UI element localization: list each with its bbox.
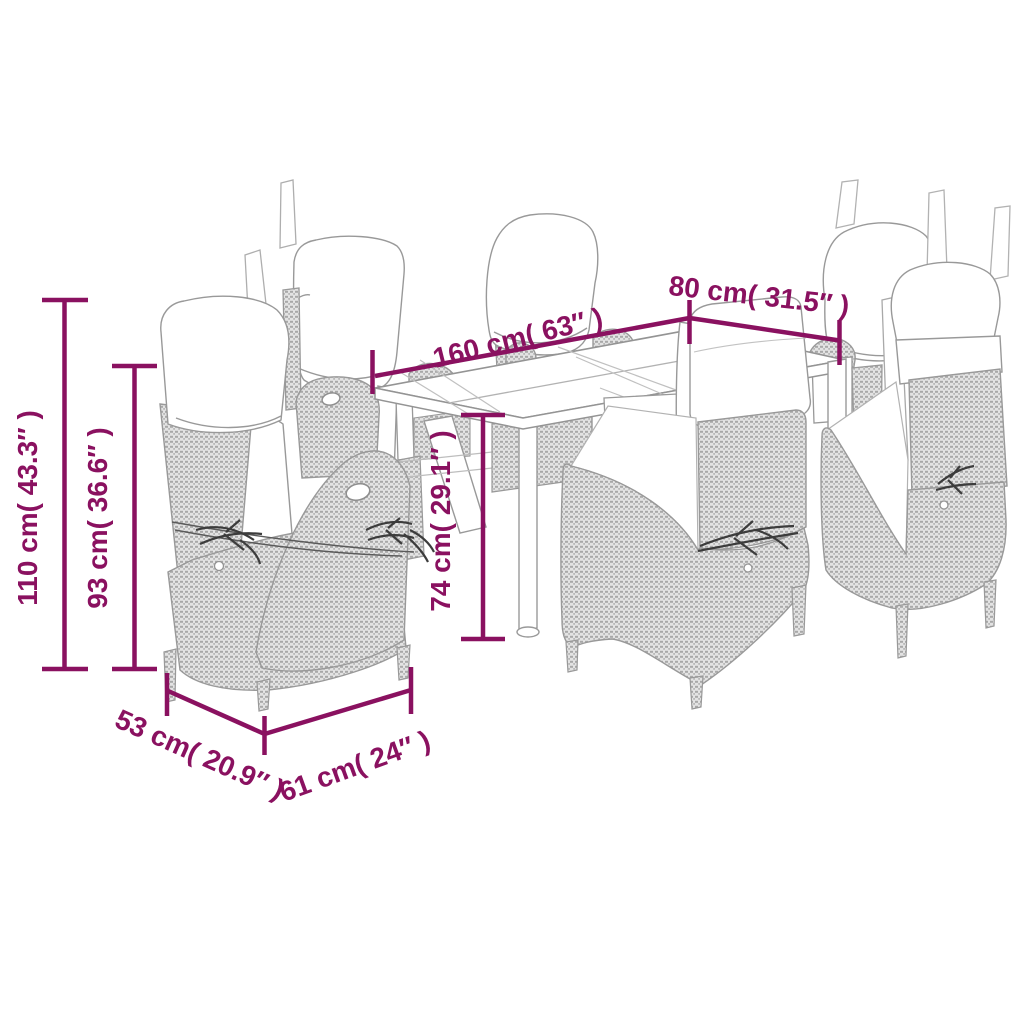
svg-text:74 cm( 29.1″ ): 74 cm( 29.1″ )	[425, 430, 456, 612]
svg-text:110 cm( 43.3″ ): 110 cm( 43.3″ )	[12, 410, 43, 606]
svg-text:93 cm( 36.6″ ): 93 cm( 36.6″ )	[82, 427, 113, 609]
